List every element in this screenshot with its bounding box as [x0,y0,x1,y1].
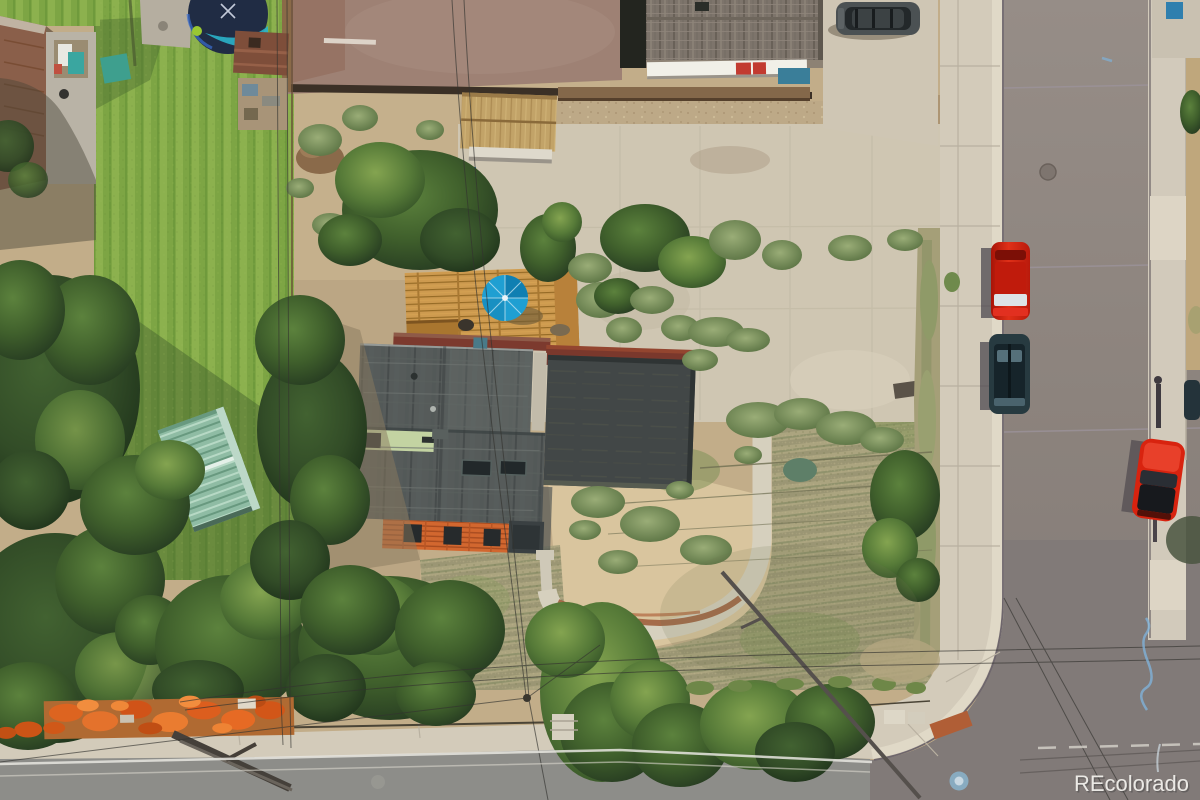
svg-text:REcolorado: REcolorado [1074,771,1189,796]
